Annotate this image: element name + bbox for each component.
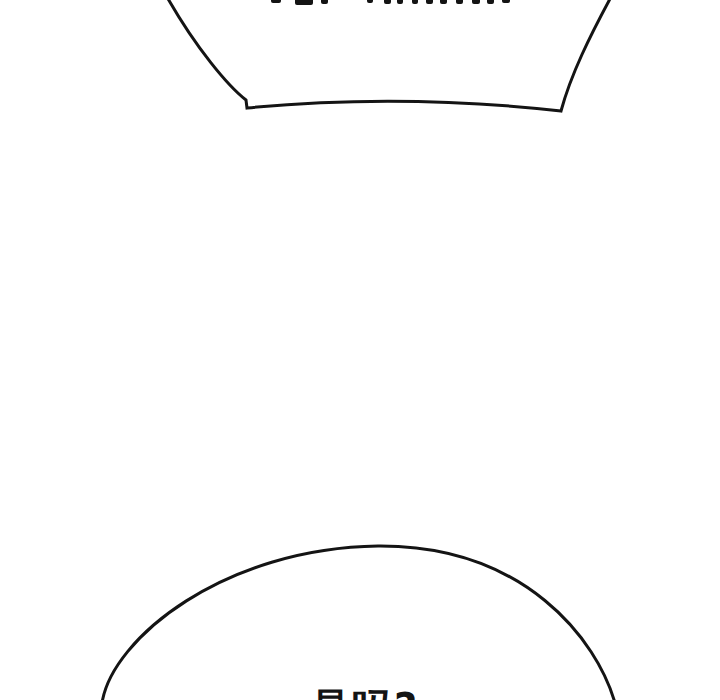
- cutoff-glyph-fragment: [271, 0, 281, 3]
- cutoff-glyph-fragment: [321, 0, 328, 4]
- cutoff-glyph-fragment: [367, 0, 373, 3]
- comic-panel: 是吗?: [0, 0, 720, 700]
- cutoff-glyph-fragment: [426, 0, 433, 4]
- cutoff-glyph-fragment: [472, 0, 480, 4]
- cutoff-glyph-fragment: [502, 0, 510, 3]
- cutoff-glyph-fragment: [412, 0, 418, 4]
- cutoff-glyph-fragment: [295, 0, 313, 5]
- cutoff-glyph-fragment: [456, 0, 463, 4]
- cutoff-text-top: [0, 0, 720, 10]
- speech-bubble-outlines: [0, 0, 720, 700]
- bottom-bubble-text: 是吗?: [310, 686, 450, 700]
- cutoff-glyph-fragment: [397, 0, 403, 4]
- cutoff-glyph-fragment: [487, 0, 494, 4]
- bottom-speech-bubble-outline: [102, 546, 615, 700]
- cutoff-glyph-fragment: [384, 0, 391, 4]
- top-speech-bubble-outline: [167, 0, 611, 111]
- cutoff-glyph-fragment: [440, 0, 447, 4]
